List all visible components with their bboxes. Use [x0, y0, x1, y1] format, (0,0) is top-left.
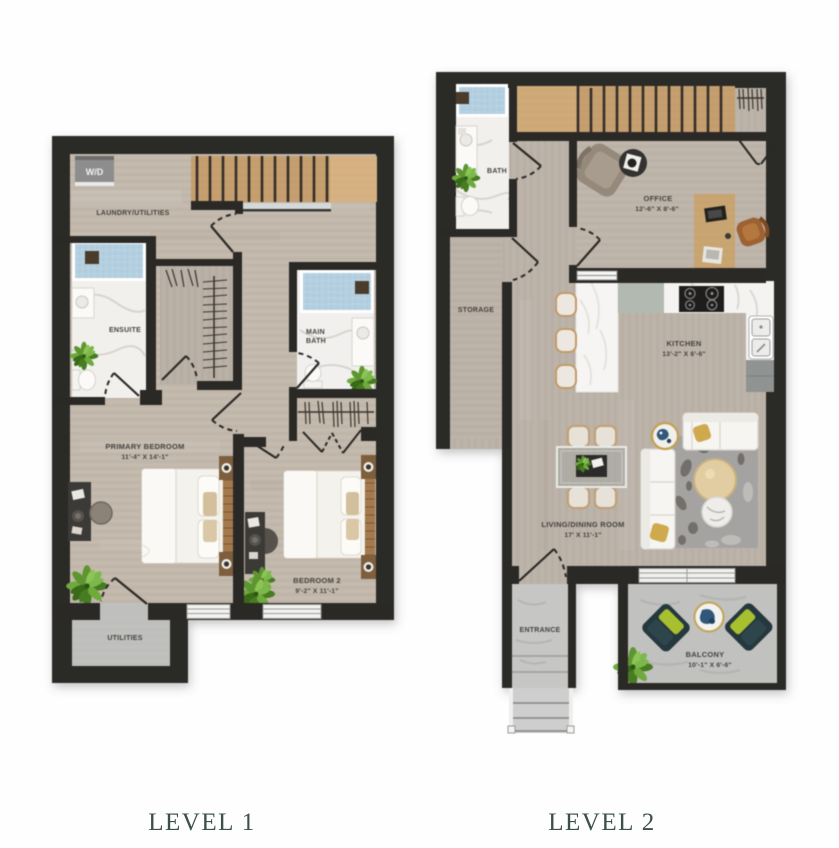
svg-text:PRIMARY BEDROOM: PRIMARY BEDROOM [105, 442, 184, 451]
svg-text:W/D: W/D [86, 167, 104, 177]
svg-text:12'-6" X 8'-6": 12'-6" X 8'-6" [635, 206, 679, 213]
svg-text:MAIN: MAIN [306, 329, 325, 336]
svg-text:LEVEL 2: LEVEL 2 [548, 809, 655, 836]
svg-text:9'-2" X 11'-1": 9'-2" X 11'-1" [295, 588, 338, 595]
svg-text:BEDROOM 2: BEDROOM 2 [293, 576, 341, 585]
svg-text:13'-2" X 6'-6": 13'-2" X 6'-6" [662, 351, 706, 358]
svg-text:KITCHEN: KITCHEN [666, 339, 701, 348]
svg-text:BALCONY: BALCONY [686, 650, 725, 659]
svg-text:10'-1" X 6'-6": 10'-1" X 6'-6" [688, 662, 732, 669]
svg-text:17' X 11'-1": 17' X 11'-1" [564, 532, 601, 539]
svg-text:STORAGE: STORAGE [458, 307, 494, 314]
svg-text:BATH: BATH [487, 168, 507, 175]
svg-text:OFFICE: OFFICE [644, 194, 673, 203]
svg-text:11'-4" X 14'-1": 11'-4" X 14'-1" [121, 454, 168, 461]
svg-text:ENTRANCE: ENTRANCE [520, 627, 561, 634]
svg-text:ENSUITE: ENSUITE [109, 327, 141, 334]
svg-text:LEVEL 1: LEVEL 1 [148, 809, 255, 836]
svg-text:LIVING/DINING ROOM: LIVING/DINING ROOM [541, 520, 624, 529]
svg-text:LAUNDRY/UTILITIES: LAUNDRY/UTILITIES [96, 210, 169, 217]
svg-text:UTILITIES: UTILITIES [107, 635, 142, 642]
svg-text:BATH: BATH [306, 338, 326, 345]
